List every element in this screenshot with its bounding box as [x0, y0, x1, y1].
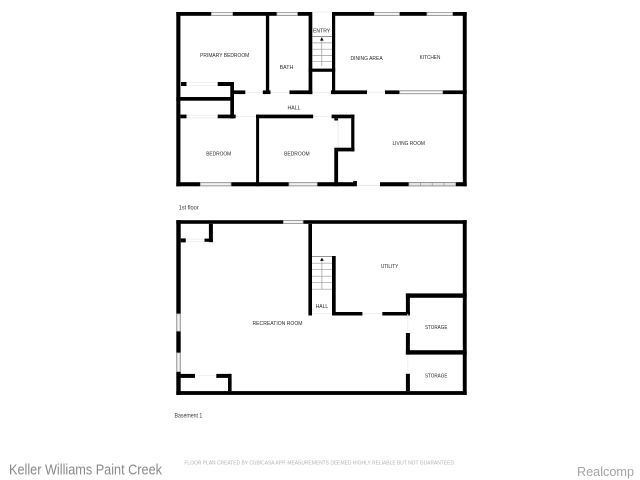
svg-text:ENTRY: ENTRY [313, 29, 330, 35]
svg-text:FLOOR PLAN CREATED BY CUBICASA: FLOOR PLAN CREATED BY CUBICASA APP. MEAS… [184, 461, 455, 467]
svg-text:STORAGE: STORAGE [425, 374, 448, 380]
svg-text:DINING AREA: DINING AREA [350, 56, 383, 62]
svg-text:PRIMARY BEDROOM: PRIMARY BEDROOM [200, 53, 249, 59]
svg-text:STORAGE: STORAGE [425, 325, 448, 331]
svg-text:Keller Williams Paint Creek: Keller Williams Paint Creek [9, 463, 163, 479]
svg-text:BATH: BATH [280, 65, 294, 71]
svg-text:1st floor: 1st floor [179, 204, 200, 211]
svg-text:HALL: HALL [288, 105, 301, 111]
svg-text:KITCHEN: KITCHEN [420, 55, 441, 61]
svg-text:BEDROOM: BEDROOM [206, 152, 231, 158]
svg-text:Basement 1: Basement 1 [175, 413, 203, 420]
svg-text:RECREATION ROOM: RECREATION ROOM [253, 321, 303, 327]
svg-text:UTILITY: UTILITY [381, 264, 399, 270]
svg-text:BEDROOM: BEDROOM [284, 152, 310, 158]
svg-text:Realcomp: Realcomp [577, 465, 634, 479]
svg-text:LIVING ROOM: LIVING ROOM [392, 141, 425, 147]
svg-text:HALL: HALL [316, 304, 329, 310]
